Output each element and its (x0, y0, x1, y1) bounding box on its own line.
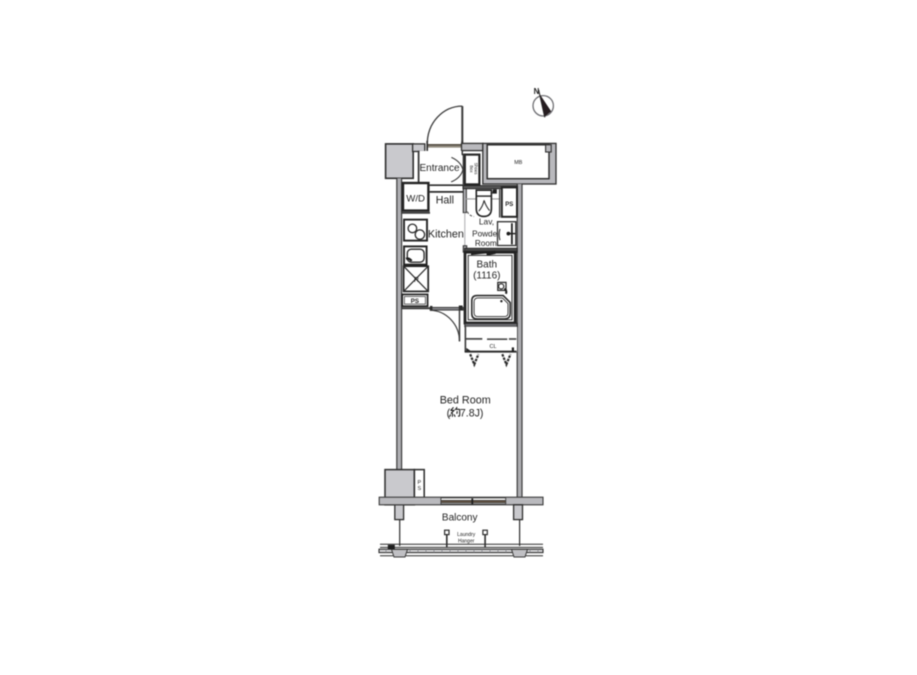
svg-text:(: ( (447, 407, 451, 419)
svg-text:S: S (417, 486, 421, 492)
svg-text:7.8J): 7.8J) (460, 407, 484, 419)
svg-text:R: R (414, 277, 419, 284)
svg-text:Bed Room: Bed Room (440, 394, 491, 406)
svg-text:Laundry: Laundry (457, 532, 476, 538)
svg-text:Lav,: Lav, (479, 217, 494, 227)
svg-text:Powder: Powder (472, 229, 500, 238)
svg-text:Bath: Bath (477, 260, 498, 271)
svg-text:MB: MB (514, 160, 522, 166)
svg-text:Hanger: Hanger (458, 538, 475, 544)
svg-text:W/D: W/D (406, 193, 425, 204)
svg-text:CL: CL (490, 344, 497, 350)
svg-text:(1116): (1116) (473, 270, 500, 281)
svg-text:Entrance: Entrance (419, 163, 459, 174)
svg-text:Shoes: Shoes (474, 163, 479, 175)
svg-text:N: N (534, 87, 540, 96)
svg-text:PS: PS (411, 298, 419, 305)
svg-text:Hall: Hall (436, 195, 454, 207)
svg-text:Room: Room (475, 239, 497, 248)
svg-text:Kitchen: Kitchen (428, 229, 464, 241)
svg-text:PS: PS (505, 202, 513, 208)
svg-text:Balcony: Balcony (442, 513, 478, 524)
svg-text:Box: Box (469, 165, 474, 173)
